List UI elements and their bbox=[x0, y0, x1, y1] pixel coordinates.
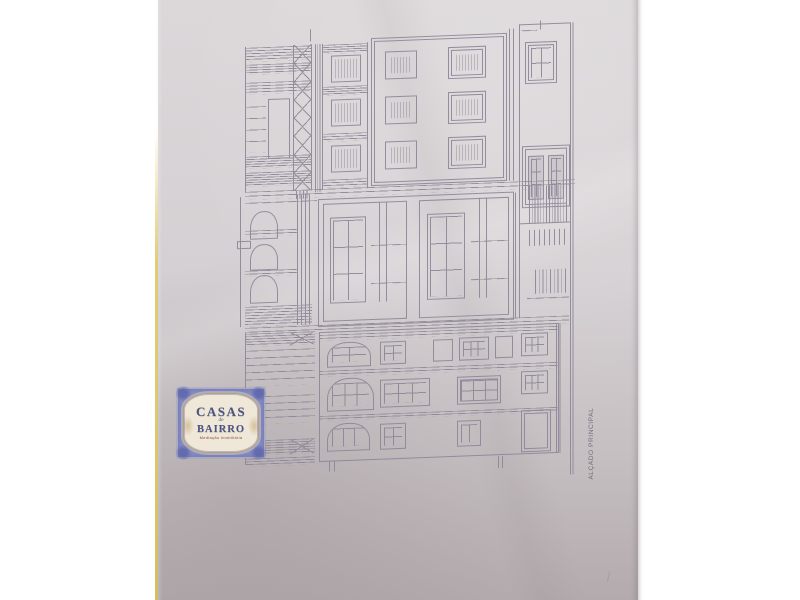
drawing-box bbox=[385, 95, 417, 124]
drawing-vl bbox=[297, 194, 313, 325]
drawing-vl bbox=[240, 197, 241, 327]
drawing-box bbox=[385, 140, 417, 169]
drawing-box bbox=[380, 423, 406, 450]
drawing-vl bbox=[498, 456, 506, 468]
drawing-hl bbox=[245, 106, 266, 153]
drawing-vl bbox=[556, 323, 563, 453]
agency-logo-stamp: CASAS do BAIRRO Mediação Imobiliária bbox=[177, 388, 265, 458]
drawing-box bbox=[331, 98, 361, 126]
drawing-hl bbox=[245, 229, 297, 237]
drawing-vl bbox=[570, 22, 575, 474]
drawing-box bbox=[457, 375, 501, 405]
drawing-vl bbox=[515, 192, 523, 318]
drawing-box bbox=[521, 332, 548, 356]
drawing-vl bbox=[540, 21, 541, 30]
drawing-box bbox=[385, 50, 417, 79]
drawing-box bbox=[448, 46, 486, 79]
drawing-arch bbox=[327, 422, 370, 452]
drawing-box bbox=[331, 54, 361, 82]
drawing-arch bbox=[327, 377, 374, 412]
drawing-box bbox=[433, 339, 453, 362]
stamp-panel: CASAS do BAIRRO Mediação Imobiliária bbox=[183, 393, 259, 453]
stamp-title: CASAS bbox=[196, 405, 246, 418]
drawing-hl bbox=[245, 269, 297, 277]
drawing-box bbox=[525, 41, 557, 84]
drawing-box bbox=[495, 336, 513, 359]
stamp-subtitle: BAIRRO bbox=[197, 424, 245, 435]
drawing-vl bbox=[529, 184, 569, 224]
drawing-vl bbox=[329, 461, 339, 471]
drawing-x bbox=[293, 44, 312, 191]
drawing-box bbox=[380, 378, 430, 408]
drawing-hl bbox=[245, 348, 315, 387]
drawing-box bbox=[331, 144, 361, 172]
drawing-box bbox=[380, 341, 406, 365]
drawing-box bbox=[448, 136, 486, 169]
drawing-box bbox=[459, 337, 489, 361]
drawing-vl bbox=[479, 197, 493, 298]
drawing-box bbox=[427, 212, 465, 299]
drawing-hl bbox=[322, 43, 368, 54]
drawing-box bbox=[457, 420, 481, 447]
drawing-title-label: ALÇADO PRINCIPAL bbox=[588, 403, 598, 479]
drawing-vl bbox=[310, 29, 311, 41]
drawing-x bbox=[290, 438, 314, 454]
drawing-vl bbox=[529, 228, 569, 246]
photo-of-elevation-drawing: ALÇADO PRINCIPAL CASAS do BAIRRO Mediaçã… bbox=[0, 0, 800, 600]
drawing-box bbox=[268, 98, 290, 159]
drawing-box bbox=[521, 370, 548, 394]
drawing-vl bbox=[535, 268, 569, 293]
drawing-box bbox=[448, 91, 486, 124]
drawing-arch bbox=[327, 341, 371, 368]
drawing-box bbox=[521, 409, 551, 452]
stamp-tagline: Mediação Imobiliária bbox=[200, 435, 243, 441]
drawing-hl bbox=[322, 85, 368, 96]
drawing-vl bbox=[379, 201, 393, 302]
elevation-drawing: ALÇADO PRINCIPAL bbox=[243, 32, 583, 480]
drawing-arch bbox=[250, 244, 278, 271]
drawing-hl bbox=[527, 296, 569, 299]
drawing-vl bbox=[315, 44, 322, 192]
drawing-x bbox=[290, 331, 314, 345]
drawing-arch bbox=[250, 275, 278, 304]
drawing-vl bbox=[509, 28, 517, 180]
drawing-box bbox=[330, 216, 366, 303]
